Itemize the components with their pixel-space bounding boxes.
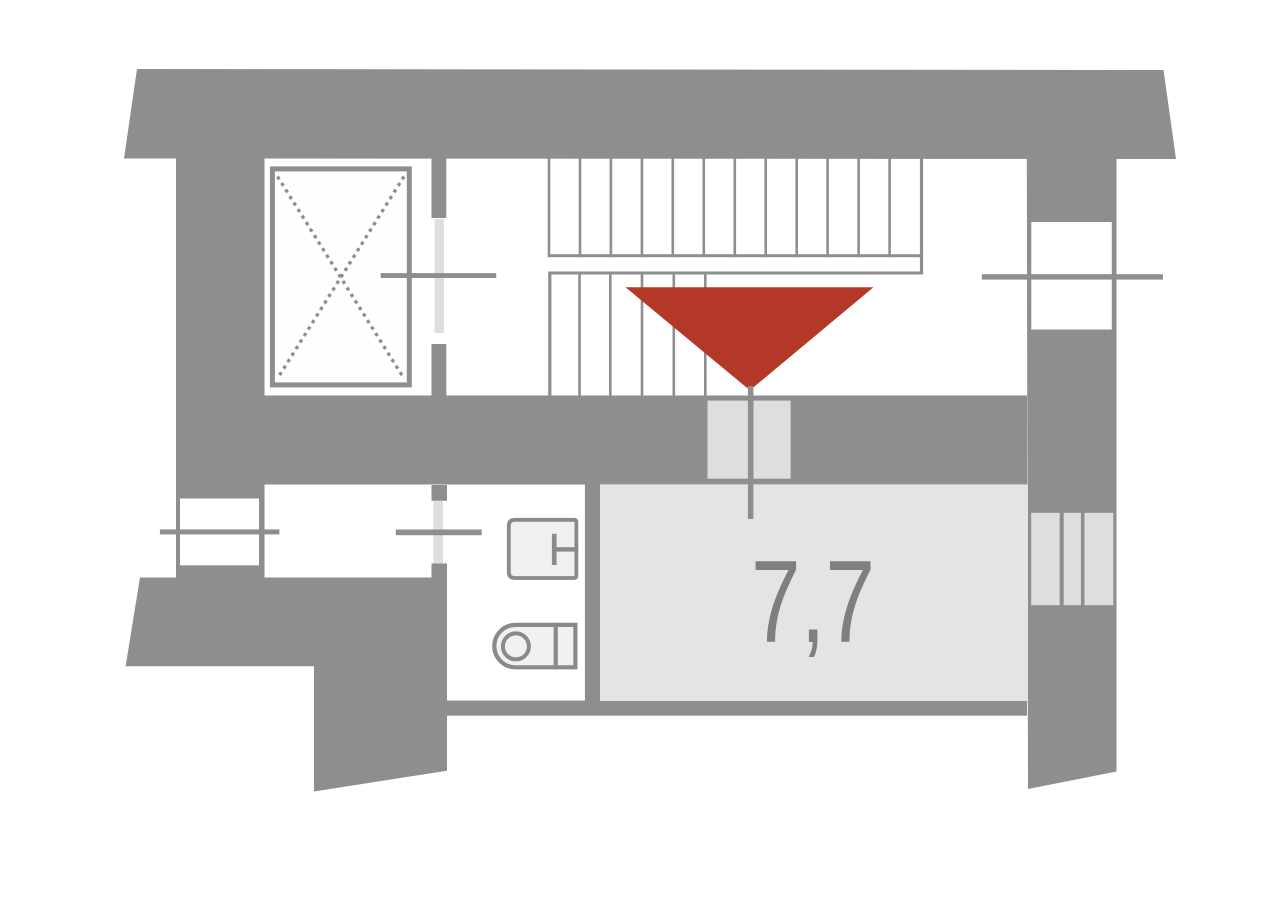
svg-text:7,7: 7,7 <box>751 536 875 667</box>
